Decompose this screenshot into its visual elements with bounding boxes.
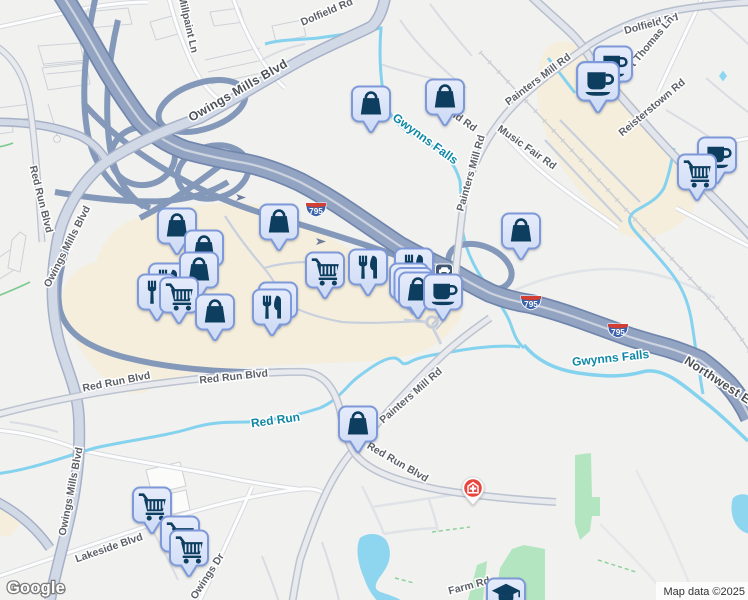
- svg-text:Map data ©2025: Map data ©2025: [664, 586, 746, 598]
- svg-text:Google: Google: [7, 579, 65, 597]
